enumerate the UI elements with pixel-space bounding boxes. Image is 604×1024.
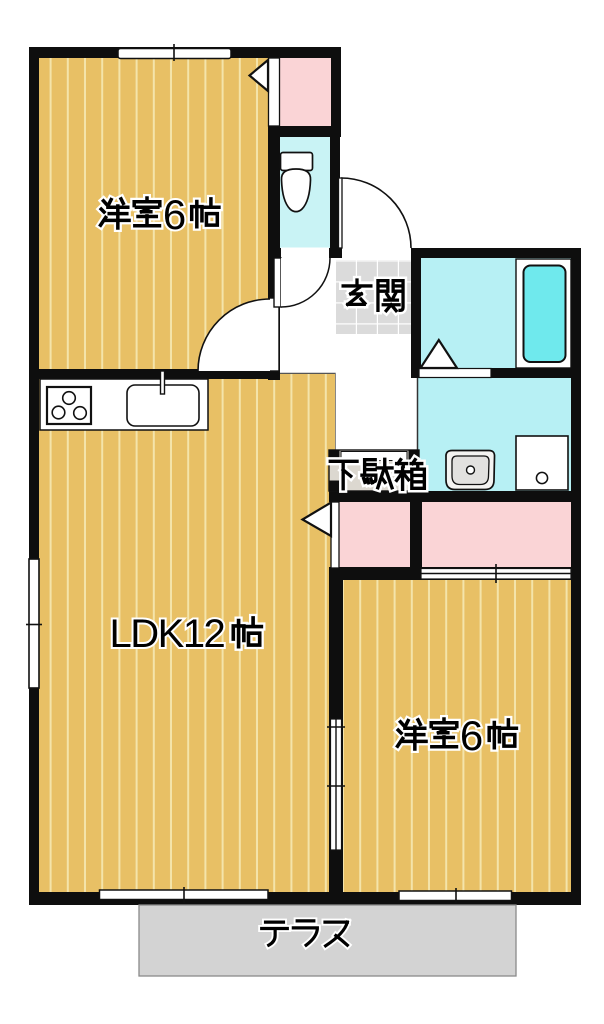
svg-text:6: 6 <box>460 712 483 759</box>
svg-text:6: 6 <box>163 191 186 238</box>
svg-text:LDK12: LDK12 <box>110 612 225 656</box>
